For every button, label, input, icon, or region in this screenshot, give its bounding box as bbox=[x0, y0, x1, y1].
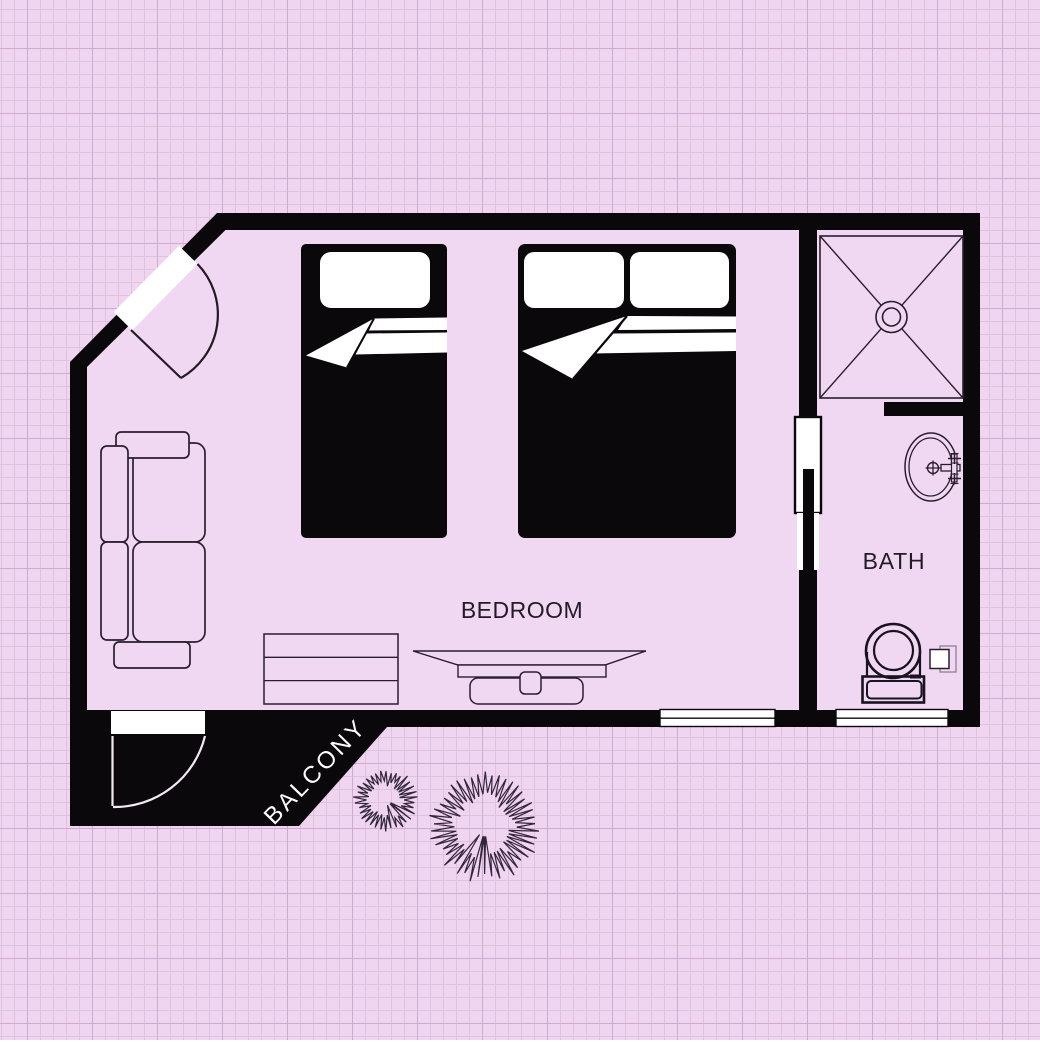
svg-text:BEDROOM: BEDROOM bbox=[461, 597, 583, 623]
svg-text:BATH: BATH bbox=[863, 548, 926, 574]
